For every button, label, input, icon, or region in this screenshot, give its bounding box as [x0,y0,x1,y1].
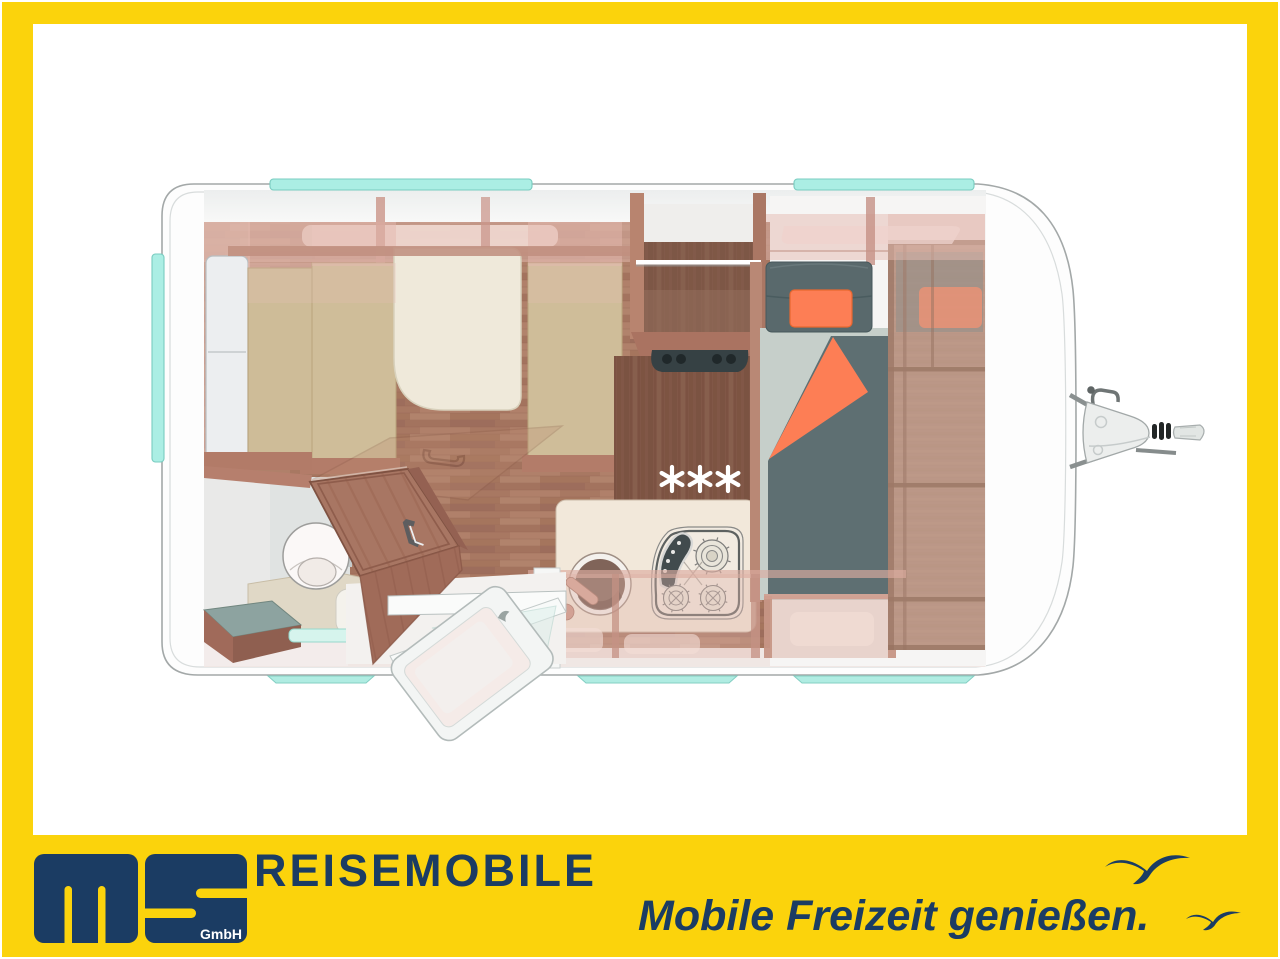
svg-text:Mobile Freizeit genießen.: Mobile Freizeit genießen. [638,892,1149,940]
svg-text:REISEMOBILE: REISEMOBILE [254,845,597,896]
svg-text:GmbH: GmbH [200,926,242,942]
